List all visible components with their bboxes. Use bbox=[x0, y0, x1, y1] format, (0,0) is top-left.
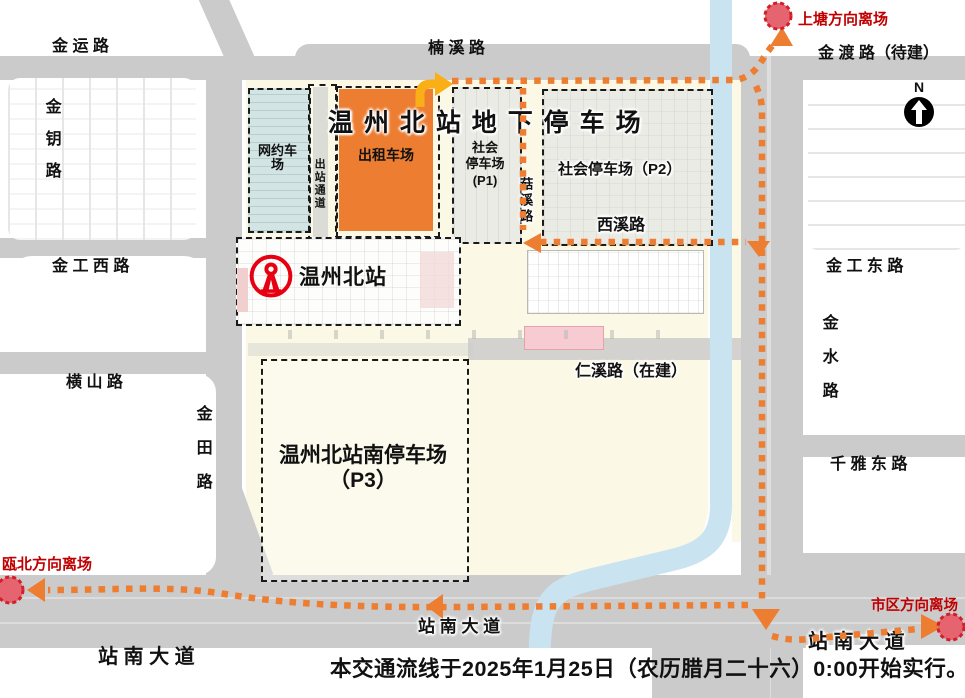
rail-platform-columns bbox=[288, 330, 696, 339]
road-east-connector bbox=[798, 553, 965, 577]
ride-hail-lot-label: 网约车场 bbox=[248, 144, 307, 173]
road-label-jinyun: 金 运 路 bbox=[52, 38, 109, 56]
underground-parking-title: 温 州 北 站 地 下 停 车 场 bbox=[328, 110, 643, 138]
block-hengshan bbox=[4, 374, 216, 575]
road-label-jinyue: 金钥路 bbox=[42, 98, 60, 194]
departure-label-oubei: 瓯北方向离场 bbox=[2, 557, 92, 574]
road-label-jindu: 金 渡 路（待建） bbox=[818, 45, 939, 63]
road-label-renxi: 仁溪路（在建） bbox=[575, 363, 687, 381]
departure-label-shiqu: 市区方向离场 bbox=[871, 599, 958, 615]
block-top-left-parking bbox=[8, 78, 196, 240]
road-label-nanxi: 楠 溪 路 bbox=[428, 40, 485, 58]
road-renxi-west-faint bbox=[248, 343, 473, 356]
p1-line1: 社会 bbox=[472, 140, 498, 155]
road-jingong-west bbox=[0, 238, 206, 258]
p2-label: 社会停车场（P2） bbox=[558, 162, 681, 179]
p3-line2: （P3） bbox=[329, 469, 397, 492]
road-qianya-east bbox=[798, 435, 965, 457]
ride-hail-line1: 网约车 bbox=[258, 143, 297, 158]
road-renxi bbox=[468, 338, 748, 360]
exit-corridor-label: 出站通道 bbox=[313, 158, 325, 210]
p1-label: 社会停车场(P1) bbox=[452, 140, 518, 189]
station-pink-annex-right bbox=[420, 252, 454, 308]
road-nanxi-wide bbox=[295, 44, 750, 80]
effective-date-notice: 本交通流线于2025年1月25日（农历腊月二十六）0:00开始实行。 bbox=[330, 658, 965, 682]
block-top-right-parking bbox=[808, 84, 965, 250]
road-label-zhannan-left: 站 南 大 道 bbox=[98, 646, 195, 668]
road-label-qianya-east: 千 雅 东 路 bbox=[830, 456, 907, 474]
east-parking-structure bbox=[527, 250, 704, 314]
p3-label: 温州北站南停车场（P3） bbox=[261, 443, 465, 493]
p1-line2: 停车场 bbox=[465, 156, 504, 171]
road-label-xixi: 西溪路 bbox=[597, 217, 645, 235]
road-label-guxi: 菇溪路 bbox=[518, 177, 532, 225]
block-qianya bbox=[808, 460, 965, 553]
station-pink-annex-left bbox=[237, 268, 248, 312]
north-label: N bbox=[901, 80, 937, 95]
taxi-lot-label: 出租车场 bbox=[336, 148, 436, 163]
arrow-up-shangtang bbox=[770, 27, 793, 46]
road-label-jingong-west: 金 工 西 路 bbox=[52, 258, 129, 276]
north-compass-icon bbox=[903, 96, 935, 128]
departure-label-shangtang: 上塘方向离场 bbox=[798, 12, 888, 29]
road-label-zhannan-right: 站 南 大 道 bbox=[808, 631, 905, 653]
p1-line3: (P1) bbox=[473, 173, 498, 188]
road-hengshan bbox=[0, 352, 215, 374]
road-label-jinshui: 金水路 bbox=[819, 314, 837, 416]
station-name-label: 温州北站 bbox=[299, 266, 387, 289]
road-label-jingong-east: 金 工 东 路 bbox=[826, 258, 903, 276]
china-railway-logo bbox=[249, 253, 293, 301]
endpoint-shangtang bbox=[765, 3, 791, 29]
road-label-jintian: 金田路 bbox=[193, 405, 211, 507]
road-label-zhannan-center: 站 南 大 道 bbox=[418, 618, 500, 637]
p3-line1: 温州北站南停车场 bbox=[279, 444, 447, 467]
traffic-flow-map: { "colors": { "flow_orange": "#ED7D31", … bbox=[0, 0, 965, 698]
ride-hail-line2: 场 bbox=[271, 157, 284, 172]
road-label-hengshan: 横 山 路 bbox=[66, 374, 123, 392]
